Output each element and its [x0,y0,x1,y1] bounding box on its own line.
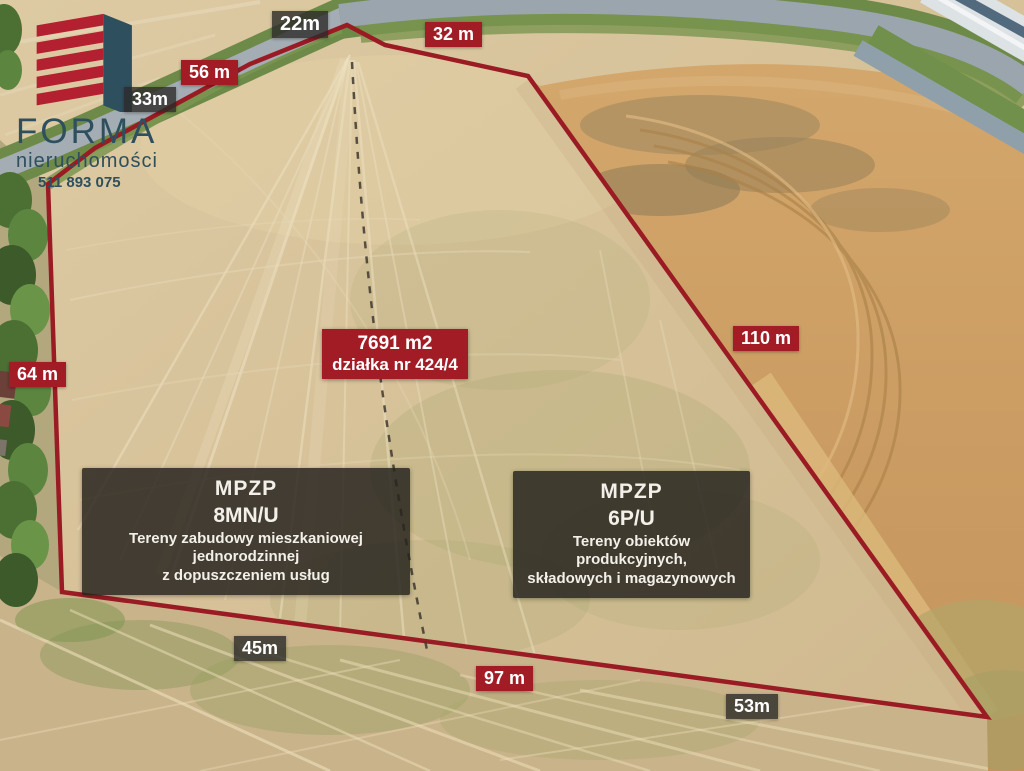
parcel-area-label: 7691 m2 działka nr 424/4 [322,329,468,379]
length-label-bottom-center: 97 m [476,666,533,691]
zoning-description-line: Tereny zabudowy mieszkaniowej jednorodzi… [90,530,402,568]
zoning-description-line: z dopuszczeniem usług [90,567,402,586]
zoning-heading: MPZP [521,479,742,505]
zoning-code: 8MN/U [90,502,402,529]
parcel-area-value: 7691 m2 [331,333,459,355]
length-label-top: 22m [272,11,328,38]
logo-tagline: nieruchomości [16,150,226,173]
zoning-description-line: Tereny obiektów produkcyjnych, [521,533,742,571]
agency-logo: FORMA nieruchomości 511 893 075 [16,12,226,191]
annotated-aerial-parcel-map: FORMA nieruchomości 511 893 075 22m 32 m… [0,0,1024,771]
length-label-upper-left-inner: 33m [124,87,176,112]
zoning-code: 6P/U [521,505,742,532]
length-label-top-right: 32 m [425,22,482,47]
logo-name: FORMA [16,114,226,149]
parcel-plot-number: działka nr 424/4 [331,355,459,375]
length-label-left: 64 m [9,362,66,387]
zoning-info-industrial: MPZP 6P/U Tereny obiektów produkcyjnych,… [513,471,750,598]
length-label-right: 110 m [733,326,799,351]
length-label-bottom-right: 53m [726,694,778,719]
zoning-info-residential: MPZP 8MN/U Tereny zabudowy mieszkaniowej… [82,468,410,595]
zoning-heading: MPZP [90,476,402,502]
zoning-description-line: składowych i magazynowych [521,570,742,589]
logo-phone: 511 893 075 [38,174,226,191]
length-label-bottom-left: 45m [234,636,286,661]
length-label-upper-left-outer: 56 m [181,60,238,85]
